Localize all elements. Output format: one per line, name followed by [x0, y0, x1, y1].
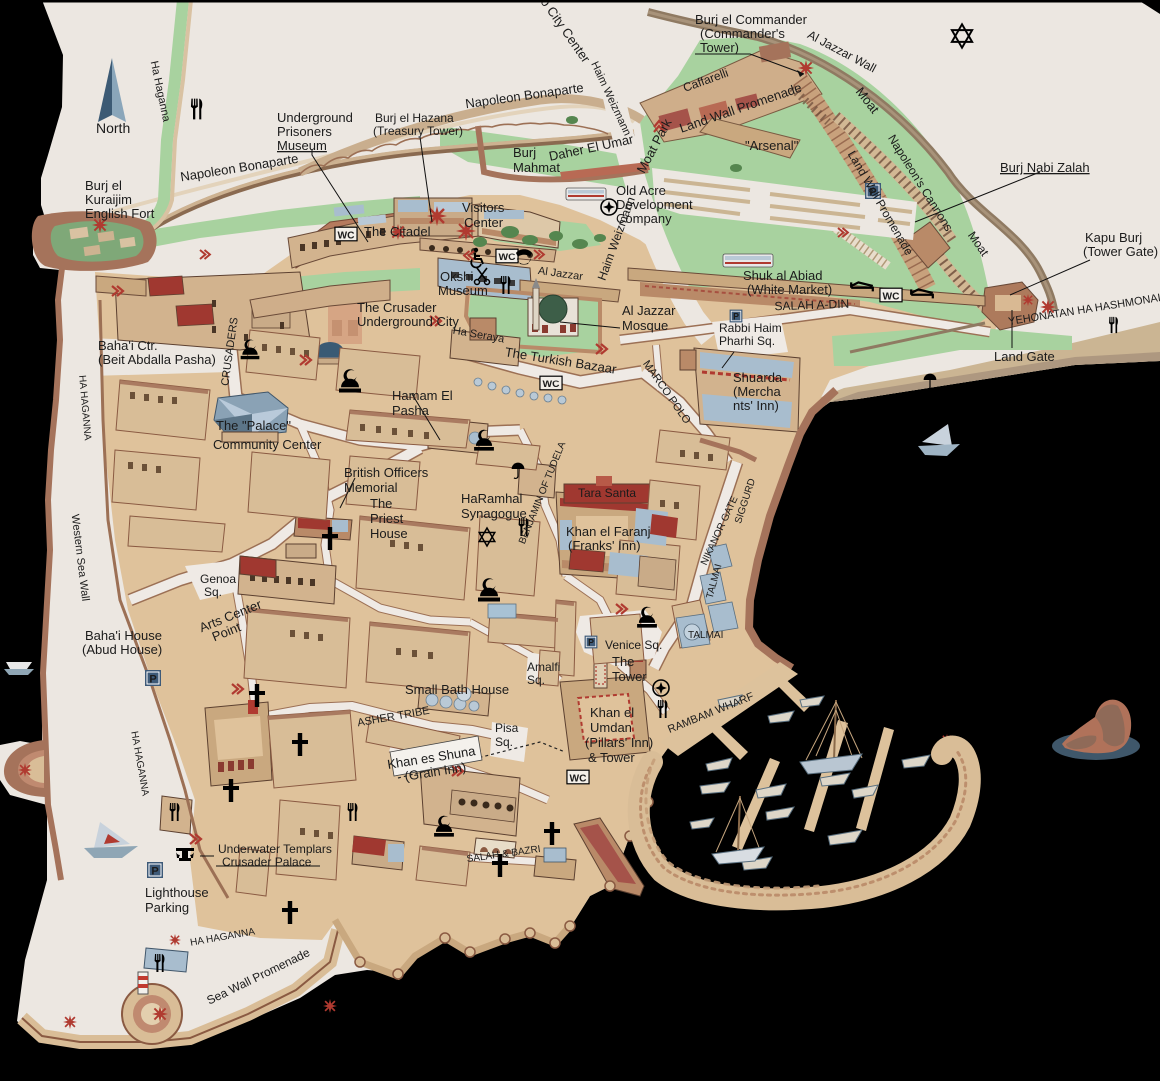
svg-text:Shuk al Abiad: Shuk al Abiad: [743, 268, 823, 283]
svg-text:Visitors: Visitors: [462, 200, 505, 215]
svg-text:(Pillars' Inn): (Pillars' Inn): [585, 735, 653, 750]
svg-text:Okshi: Okshi: [440, 269, 473, 284]
svg-text:(Commander's: (Commander's: [700, 26, 785, 41]
svg-text:nts' Inn): nts' Inn): [733, 398, 779, 413]
svg-text:(Tower Gate): (Tower Gate): [1083, 244, 1158, 259]
svg-text:English Fort: English Fort: [85, 206, 155, 221]
svg-text:(Franks' Inn): (Franks' Inn): [568, 538, 641, 553]
svg-text:Museum: Museum: [438, 283, 488, 298]
svg-text:SALAH A-DIN: SALAH A-DIN: [774, 297, 849, 314]
svg-text:Priest: Priest: [370, 511, 404, 526]
svg-text:Baha'i Ctr.: Baha'i Ctr.: [98, 338, 158, 353]
svg-text:"Arsenal": "Arsenal": [745, 138, 799, 153]
svg-text:Burj Nabi Zalah: Burj Nabi Zalah: [1000, 160, 1090, 175]
svg-text:HaRamhal: HaRamhal: [461, 491, 523, 506]
svg-text:(Mercha: (Mercha: [733, 384, 781, 399]
svg-text:Crusader Palace: Crusader Palace: [222, 855, 312, 869]
svg-text:(Treasury Tower): (Treasury Tower): [373, 124, 463, 138]
svg-text:(Beit Abdalla Pasha): (Beit Abdalla Pasha): [98, 352, 216, 367]
svg-text:Hamam El: Hamam El: [392, 388, 453, 403]
svg-text:Khan el: Khan el: [590, 705, 634, 720]
svg-text:Tower): Tower): [700, 40, 739, 55]
svg-text:Kuraijim: Kuraijim: [85, 192, 132, 207]
svg-text:Burj el Hazana: Burj el Hazana: [375, 111, 454, 125]
svg-text:Rabbi Haim: Rabbi Haim: [719, 321, 782, 335]
svg-text:House: House: [370, 526, 408, 541]
svg-text:Museum: Museum: [277, 138, 327, 153]
svg-text:The: The: [370, 496, 392, 511]
svg-text:Sq.: Sq.: [495, 735, 513, 749]
svg-text:Memorial: Memorial: [344, 480, 398, 495]
svg-text:The Crusader: The Crusader: [357, 300, 437, 315]
svg-text:Baha'i House: Baha'i House: [85, 628, 162, 643]
svg-text:Pisa: Pisa: [495, 721, 519, 735]
svg-text:Burj el: Burj el: [85, 178, 122, 193]
svg-text:Pasha: Pasha: [392, 403, 430, 418]
svg-text:Parking: Parking: [145, 900, 189, 915]
svg-text:Community Center: Community Center: [213, 437, 322, 452]
svg-text:(White Market): (White Market): [747, 282, 832, 297]
svg-text:The Citadel: The Citadel: [364, 224, 431, 239]
svg-text:Genoa: Genoa: [200, 572, 236, 586]
svg-text:Amalfi: Amalfi: [527, 660, 560, 674]
svg-text:Sq.: Sq.: [204, 585, 222, 599]
svg-text:Shuarda: Shuarda: [733, 370, 783, 385]
svg-text:The: The: [612, 654, 634, 669]
svg-text:(Abud House): (Abud House): [82, 642, 162, 657]
svg-text:Umdan: Umdan: [590, 720, 632, 735]
svg-text:Underwater Templars: Underwater Templars: [218, 842, 332, 856]
svg-text:Land Gate: Land Gate: [994, 349, 1055, 364]
svg-text:The "Palace": The "Palace": [216, 418, 291, 433]
svg-text:Small Bath House: Small Bath House: [405, 682, 509, 697]
svg-text:Burj: Burj: [513, 145, 536, 160]
svg-text:Center: Center: [464, 215, 504, 230]
svg-text:TALMAI: TALMAI: [688, 630, 723, 641]
svg-text:Tara Santa: Tara Santa: [578, 486, 636, 500]
svg-text:Khan el Faranj: Khan el Faranj: [566, 524, 651, 539]
svg-text:Synagogue: Synagogue: [461, 506, 527, 521]
svg-text:Prisoners: Prisoners: [277, 124, 332, 139]
svg-text:Pharhi Sq.: Pharhi Sq.: [719, 334, 775, 348]
svg-text:Underground City: Underground City: [357, 314, 459, 329]
svg-text:North: North: [96, 120, 130, 136]
svg-text:Tower: Tower: [612, 669, 647, 684]
svg-text:& Tower: & Tower: [588, 750, 635, 765]
svg-text:Burj el Commander: Burj el Commander: [695, 12, 808, 27]
svg-text:Al Jazzar: Al Jazzar: [622, 303, 676, 318]
svg-text:Kapu Burj: Kapu Burj: [1085, 230, 1142, 245]
svg-text:Sq.: Sq.: [527, 673, 545, 687]
svg-text:Underground: Underground: [277, 110, 353, 125]
svg-text:Lighthouse: Lighthouse: [145, 885, 209, 900]
svg-text:Mosque: Mosque: [622, 318, 668, 333]
svg-text:Venice Sq.: Venice Sq.: [605, 638, 662, 652]
svg-text:British Officers: British Officers: [344, 465, 429, 480]
